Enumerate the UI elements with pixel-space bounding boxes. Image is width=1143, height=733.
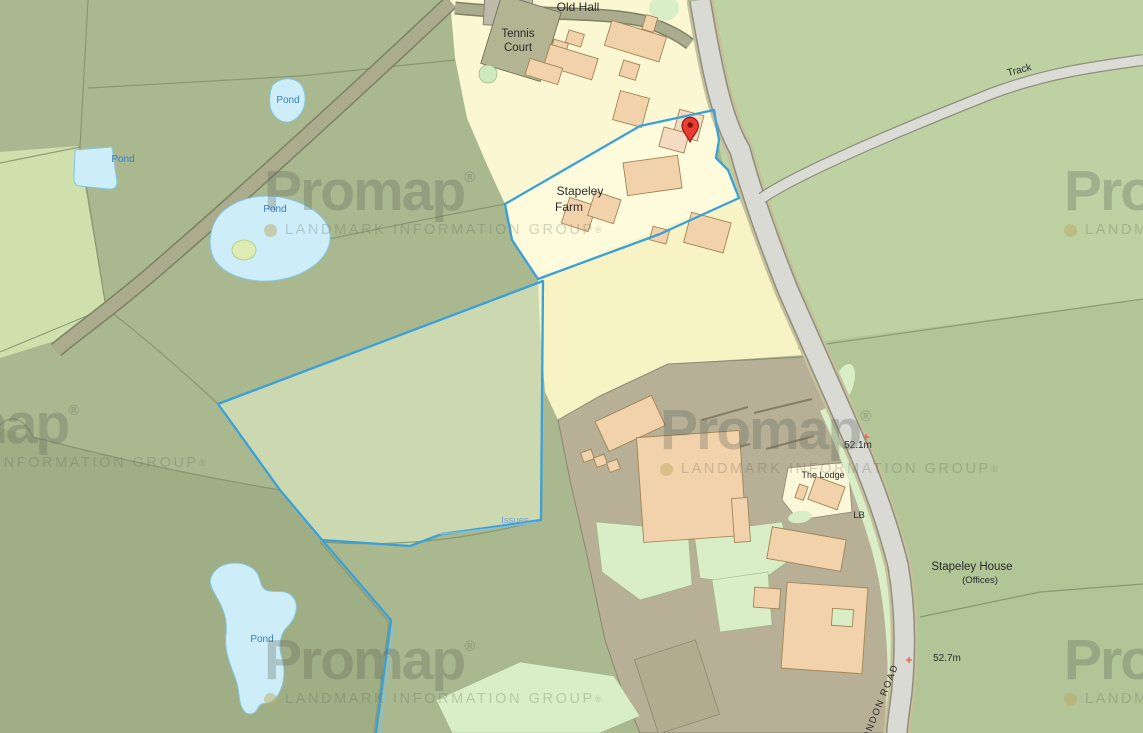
pond-label-south: Pond [250, 634, 273, 645]
complex-main-building [636, 430, 746, 542]
stapeley-house-sub-label: (Offices) [962, 575, 998, 586]
pond-label-large: Pond [263, 204, 286, 215]
stapeley-house-main [781, 582, 868, 673]
spot-height-52-1: 52.1m [844, 440, 872, 451]
stapeley-house-label: Stapeley House [931, 561, 1012, 573]
tree-symbol [479, 65, 497, 83]
tennis-court-label-2: Court [504, 42, 533, 54]
stapeley-farm-label-2: Farm [555, 200, 583, 214]
lb-label: LB [853, 510, 865, 521]
stapeley-house-courtyard [831, 608, 853, 626]
spot-height-52-7: 52.7m [933, 653, 961, 664]
complex-annex [731, 497, 750, 542]
promap-map-canvas[interactable]: Old Hall Tennis Court Stapeley Farm Pond… [0, 0, 1143, 733]
tennis-court-label-1: Tennis [501, 28, 534, 40]
pond-label-top: Pond [276, 95, 299, 106]
pond-islet [232, 240, 256, 260]
stapeley-farm-label-1: Stapeley [557, 184, 604, 198]
issues-label: Issues [501, 515, 529, 526]
pond-label-west: Pond [111, 154, 134, 165]
old-hall-label: Old Hall [557, 0, 600, 14]
field-fills [0, 0, 1143, 733]
farm-barn-large [623, 155, 682, 195]
the-lodge-label: The Lodge [801, 470, 844, 480]
stapeley-house-west-annex [753, 587, 780, 609]
os-map-layers: Old Hall Tennis Court Stapeley Farm Pond… [0, 0, 1143, 733]
